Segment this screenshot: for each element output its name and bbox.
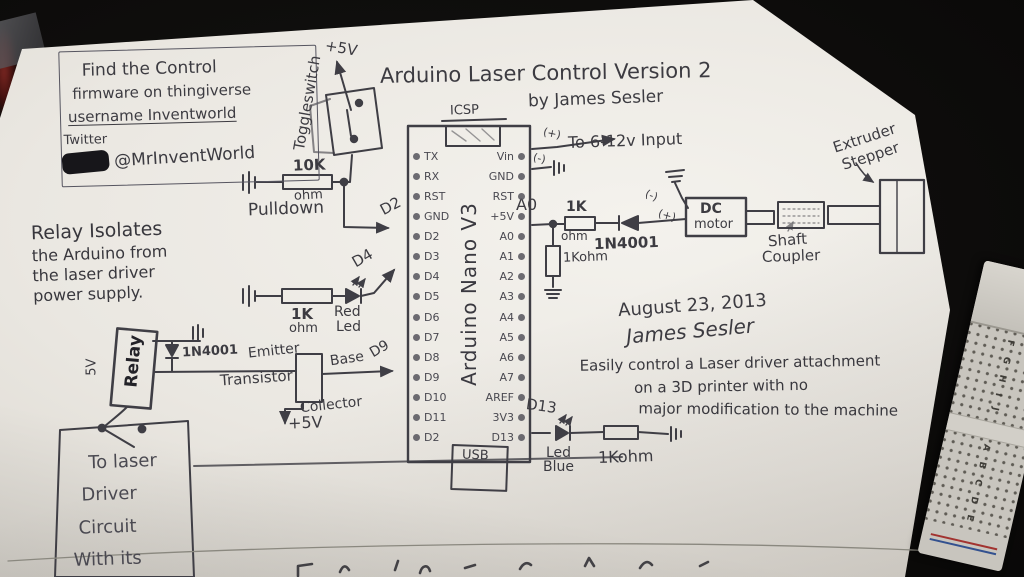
arduino-left-pin: GND <box>413 210 449 223</box>
photo-stage: Arduino Laser Control Version 2 by James… <box>0 0 1024 577</box>
breadboard-grid-2: A B C D E <box>925 430 1024 539</box>
pulldown-value-label: 10K <box>293 156 326 174</box>
arduino-right-pin: A3 <box>499 290 525 303</box>
arduino-right-pin: A0 <box>499 230 525 243</box>
arduino-right-pin: D13 <box>492 431 525 444</box>
a0-resistor-value: 1K <box>566 200 587 215</box>
arduino-left-pin: D9 <box>413 371 449 384</box>
breadboard-columns-fghij: F G H I J <box>948 325 1024 429</box>
red-led-label-2: Led <box>336 320 361 335</box>
arduino-left-pin: D2 <box>413 230 449 243</box>
arduino-center-label: Arduino Nano V3 <box>457 202 481 386</box>
info-line-2: firmware on thingiverse <box>72 81 251 102</box>
arduino-right-pin-column: VinGNDRST+5VA0A1A2A3A4A5A6A7AREF3V3D13 <box>486 150 525 444</box>
arduino-left-pin: D2 <box>413 431 449 444</box>
laser-box-line: With its <box>73 541 186 577</box>
flyback-diode-label: 1N4001 <box>182 344 239 361</box>
vin-input-label: To 6-12v Input <box>568 130 683 152</box>
arduino-right-pin: A4 <box>499 311 525 324</box>
a0-resistor-unit: ohm <box>561 230 588 243</box>
blue-led-label-2: Blue <box>543 460 574 475</box>
shaft-coupler-label-2: Coupler <box>762 247 821 266</box>
red-led-resistor-unit: ohm <box>289 322 318 336</box>
arduino-right-pin: GND <box>489 170 525 183</box>
dc-motor-label-1: DC <box>700 202 722 217</box>
shunt-resistor-label: 1Kohm <box>563 250 608 266</box>
description-text: Easily control a Laser driver attachment… <box>579 349 898 424</box>
blue-led-resistor-label: 1Kohm <box>598 447 654 467</box>
arduino-right-pin: RST <box>493 190 525 203</box>
arduino-left-pin: D5 <box>413 290 449 303</box>
arduino-right-pin: A2 <box>499 270 525 283</box>
arduino-left-pin: D10 <box>413 391 449 404</box>
laser-box-line: Driver <box>81 476 184 512</box>
icsp-label: ICSP <box>450 103 479 118</box>
arduino-left-pin: D4 <box>413 270 449 283</box>
description-line: on a 3D printer with no <box>634 372 898 400</box>
scribble-blob <box>61 150 110 175</box>
info-line-3: username Inventworld <box>68 105 237 126</box>
info-box: Find the Control firmware on thingiverse… <box>58 45 319 188</box>
arduino-left-pin: D3 <box>413 250 449 263</box>
arduino-right-pin: +5V <box>490 210 525 223</box>
arduino-left-pin: D6 <box>413 311 449 324</box>
pulldown-label: Pulldown <box>248 199 325 220</box>
laser-box-line: Circuit <box>78 509 185 545</box>
arduino-right-pin: 3V3 <box>492 411 525 424</box>
relay-voltage-label: 5V <box>85 359 99 376</box>
info-line-1: Find the Control <box>82 58 217 80</box>
arduino-left-pin: RST <box>413 190 449 203</box>
arduino-right-pin: AREF <box>486 391 525 404</box>
arduino-right-pin: A1 <box>499 250 525 263</box>
laser-box-line: To laser <box>88 444 183 480</box>
arduino-right-pin: A6 <box>499 351 525 364</box>
laser-driver-box-text: To laserDriverCircuitWith its <box>70 444 186 577</box>
arduino-left-pin: D7 <box>413 331 449 344</box>
gnd-minus-label: (-) <box>532 152 547 166</box>
twitter-handle: @MrInventWorld <box>114 144 256 171</box>
breadboard-columns-abcde: A B C D E <box>923 432 1024 536</box>
arduino-left-pin: TX <box>413 150 449 163</box>
description-line: major modification to the machine <box>638 397 898 423</box>
arduino-left-pin-column: TXRXRSTGNDD2D3D4D5D6D7D8D9D10D11D2 <box>413 150 449 444</box>
arduino-left-pin: D8 <box>413 351 449 364</box>
dc-motor-label-2: motor <box>694 218 733 232</box>
arduino-left-pin: RX <box>413 170 449 183</box>
arduino-right-pin: A7 <box>499 371 525 384</box>
arduino-right-pin: A5 <box>499 331 525 344</box>
plus5v-bottom-label: +5V <box>288 413 323 432</box>
arduino-right-pin: Vin <box>497 150 525 163</box>
twitter-label: Twitter <box>63 133 107 148</box>
arduino-left-pin: D11 <box>413 411 449 424</box>
relay-note: Relay Isolatesthe Arduino fromthe laser … <box>31 218 169 306</box>
arduino-nano-board: TXRXRSTGNDD2D3D4D5D6D7D8D9D10D11D2 VinGN… <box>408 126 530 462</box>
